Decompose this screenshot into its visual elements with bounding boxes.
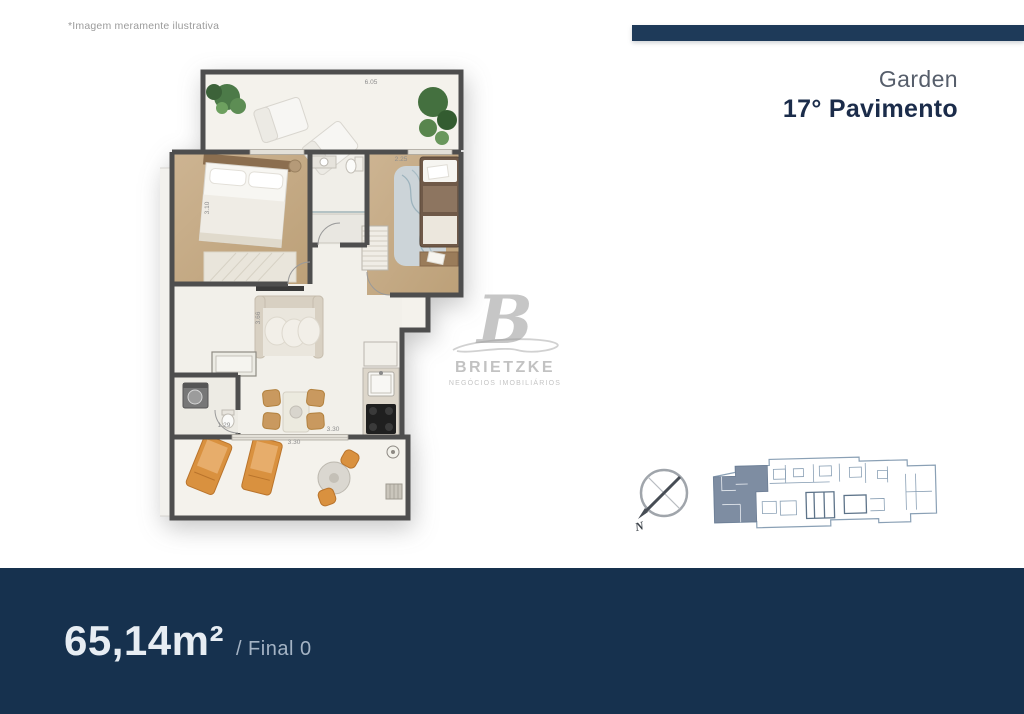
- toilet: [346, 159, 356, 173]
- brochure-page: *Imagem meramente ilustrativa Garden 17°…: [0, 0, 1024, 714]
- floor-title: 17° Pavimento: [783, 95, 958, 124]
- bed: [196, 153, 291, 247]
- footer-content: 65,14m² / Final 0: [0, 617, 312, 665]
- bench-shelf: [420, 251, 458, 266]
- unit-area: 65,14m²: [64, 617, 224, 665]
- dim-dining: 3.30: [327, 426, 340, 433]
- north-label: N: [632, 518, 646, 534]
- floor-drain: [386, 484, 402, 499]
- compass-icon: N: [632, 462, 700, 534]
- tv-panel: [256, 286, 304, 291]
- shower: [312, 214, 365, 243]
- header: Garden 17° Pavimento: [783, 66, 958, 124]
- dim-bath-door: 1.29: [218, 422, 231, 429]
- closet: [212, 352, 256, 376]
- daybed: [420, 157, 460, 247]
- project-subtitle: Garden: [783, 66, 958, 92]
- footer-band: 65,14m² / Final 0: [0, 568, 1024, 714]
- building-key-plan: [709, 449, 941, 539]
- kitchen-sink: [368, 372, 394, 396]
- unit-final: / Final 0: [236, 638, 312, 661]
- basket: [289, 160, 301, 172]
- kitchen: [363, 342, 399, 437]
- striped-rug: [204, 252, 296, 282]
- north-needle: [644, 477, 680, 513]
- dim-living: 3.66: [255, 311, 262, 324]
- apartment-floor-plan: 6.05 2.25 3.10 3.66 1.29 3.30 3.30: [160, 60, 480, 530]
- sofa: [255, 296, 323, 358]
- dim-terrace-top: 6.05: [365, 79, 378, 86]
- cabinet: [364, 342, 397, 366]
- accent-bar: [632, 25, 1024, 41]
- dim-bedroom2: 2.25: [395, 156, 408, 163]
- washer: [183, 383, 208, 408]
- disclaimer-text: *Imagem meramente ilustrativa: [68, 20, 219, 32]
- cooktop: [366, 404, 396, 434]
- dim-terrace-bottom: 3.30: [288, 439, 301, 446]
- dim-bedroom1: 3.10: [204, 201, 211, 214]
